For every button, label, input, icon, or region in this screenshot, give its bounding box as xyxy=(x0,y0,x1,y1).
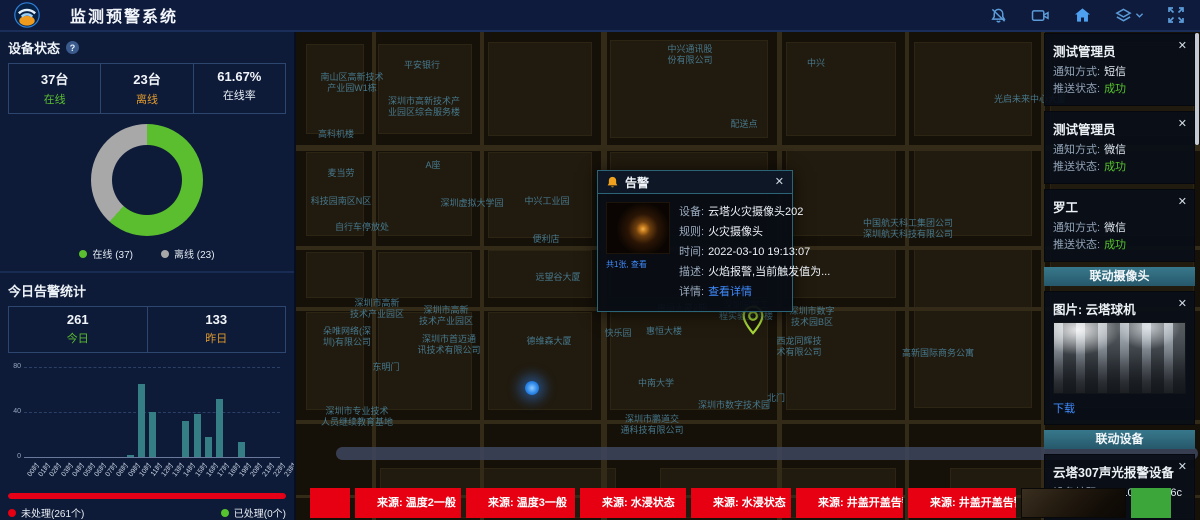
stat-cell: 37台在线 xyxy=(9,64,100,113)
map-building xyxy=(914,42,1032,136)
ticker-item-text: 来源: 温度2一般 xyxy=(355,488,461,518)
map-label: 中国航天科工集团公司深圳航天科技有限公司 xyxy=(863,218,953,240)
map-building xyxy=(488,42,592,136)
card-title: 测试管理员 xyxy=(1053,119,1186,138)
bar xyxy=(194,414,201,457)
processed-legend-item: 已处理(0个) xyxy=(221,505,286,520)
popup-field-label: 时间: xyxy=(679,242,704,262)
card-row: 推送状态:成功 xyxy=(1053,81,1186,98)
map-building xyxy=(786,42,896,136)
map-label: 中兴 xyxy=(807,58,825,69)
map-label: 南山区高新技术产业园W1栋 xyxy=(320,72,383,94)
header: 监测预警系统 xyxy=(0,0,1200,32)
alarm-bell-icon xyxy=(606,176,619,189)
app-root: 监测预警系统 xyxy=(0,0,1200,520)
popup-field-value: 火焰报警,当前触发值为... xyxy=(708,262,830,282)
bar xyxy=(138,384,145,457)
card-row-value: 成功 xyxy=(1104,83,1126,95)
map-label: 深圳市高新技术产业园区综合服务楼 xyxy=(388,96,460,118)
ticker-item-text: 来源: 井盖开盖告警 xyxy=(796,488,903,518)
camera-snapshot-image[interactable] xyxy=(1053,322,1186,394)
stat-value: 133 xyxy=(148,312,286,327)
alert-thumbnail-wrap: 共1张, 查看 xyxy=(606,202,670,302)
alert-ticker-item[interactable]: 来源: 水浸状态 xyxy=(580,488,686,518)
alert-ticker-item[interactable] xyxy=(310,488,350,518)
map-label: 快乐园 xyxy=(604,328,631,339)
map-label: 中兴工业园 xyxy=(524,196,569,207)
device-status-donut-wrap xyxy=(8,114,286,238)
app-logo-icon xyxy=(14,2,40,28)
notifications-icon[interactable] xyxy=(990,7,1007,24)
stat-value: 261 xyxy=(9,312,147,327)
close-icon[interactable]: ✕ xyxy=(1178,39,1187,52)
map-label: 西龙同辉技术有限公司 xyxy=(776,336,821,358)
stat-cell: 23台离线 xyxy=(100,64,192,113)
ticker-item-text: 来源: 水浸状态 xyxy=(691,488,791,518)
right-panel: ✕测试管理员通知方式:短信推送状态:成功✕测试管理员通知方式:微信推送状态:成功… xyxy=(1044,30,1195,520)
stat-label: 昨日 xyxy=(148,330,286,346)
left-panel: 设备状态 ? 37台在线23台离线61.67%在线率 在线 (37)离线 (23… xyxy=(0,30,296,520)
popup-field: 规则:火灾摄像头 xyxy=(679,222,830,242)
notification-cards: ✕测试管理员通知方式:短信推送状态:成功✕测试管理员通知方式:微信推送状态:成功… xyxy=(1044,33,1195,262)
unprocessed-legend-item: 未处理(261个) xyxy=(8,505,84,520)
map-label: 朵唯网络(深圳)有限公司 xyxy=(323,326,371,348)
stat-value: 61.67% xyxy=(194,69,285,84)
card-row: 通知方式:短信 xyxy=(1053,64,1186,81)
map-label: 深圳市高新技术产业园区 xyxy=(419,305,473,327)
stat-label: 今日 xyxy=(9,330,147,346)
bar xyxy=(216,399,223,458)
legend-item[interactable]: 离线 (23) xyxy=(161,246,215,261)
map-label: 深圳市数字技术园 xyxy=(698,400,770,411)
camera-card-title: 图片: 云塔球机 xyxy=(1053,299,1186,318)
map-label: 深圳市高新技术产业园区 xyxy=(350,298,404,320)
processed-legend: 未处理(261个) 已处理(0个) xyxy=(8,499,286,520)
popup-field: 描述:火焰报警,当前触发值为... xyxy=(679,262,830,282)
close-icon[interactable]: ✕ xyxy=(1178,117,1187,130)
map-label: 深圳市首迈通讯技术有限公司 xyxy=(417,334,480,356)
card-row-value: 成功 xyxy=(1104,161,1126,173)
ticker-item-text: 来源: 井盖开盖告警 xyxy=(908,488,1016,518)
stat-value: 23台 xyxy=(101,69,192,88)
stat-cell: 261今日 xyxy=(9,307,147,352)
hourly-alarm-bar-chart: 00时01时02时03时04时05时06时07时08时09时10时11时12时1… xyxy=(8,355,286,493)
map-building xyxy=(378,252,472,298)
card-row-label: 通知方式: xyxy=(1053,66,1100,78)
popup-field-value: 云塔火灾摄像头202 xyxy=(708,202,803,222)
card-row-label: 通知方式: xyxy=(1053,144,1100,156)
map-building xyxy=(488,152,592,238)
map-label: 中南大学 xyxy=(638,378,674,389)
alert-ticker: 来源: 温度2一般来源: 温度3一般来源: 水浸状态来源: 水浸状态来源: 井盖… xyxy=(310,488,1171,518)
today-alarms-title: 今日告警统计 xyxy=(8,278,286,306)
alert-fields: 设备:云塔火灾摄像头202规则:火灾摄像头时间:2022-03-10 19:13… xyxy=(679,202,830,302)
card-row: 推送状态:成功 xyxy=(1053,237,1186,254)
card-row-label: 推送状态: xyxy=(1053,83,1100,95)
map-building xyxy=(488,312,592,410)
ticker-item-text: 来源: 温度3一般 xyxy=(466,488,575,518)
x-axis-line xyxy=(24,457,280,458)
legend-text: 在线 (37) xyxy=(92,246,133,261)
bar xyxy=(182,421,189,457)
map-label: 高科机楼 xyxy=(318,129,354,140)
y-axis-tick: 80 xyxy=(8,363,21,370)
stat-value: 37台 xyxy=(9,69,100,88)
ticker-thumbnail-green xyxy=(1131,488,1171,518)
layers-icon[interactable] xyxy=(1115,7,1144,24)
popup-field-label: 规则: xyxy=(679,222,704,242)
map-label: 自行车停放处 xyxy=(335,222,389,233)
camera-card: ✕ 图片: 云塔球机 下载 xyxy=(1044,291,1195,425)
unprocessed-progress-fill xyxy=(8,493,286,499)
unprocessed-dot xyxy=(8,509,16,517)
map-label: 深圳市专业技术人员继续教育基地 xyxy=(321,406,393,428)
map-label: 便利店 xyxy=(532,234,559,245)
alert-popup-title: 告警 xyxy=(625,174,769,191)
ticker-thumbnail-dark xyxy=(1021,488,1126,518)
map-label: 深圳市数字技术园B区 xyxy=(789,306,834,328)
processed-label: 已处理(0个) xyxy=(234,505,286,520)
today-alarms-section: 今日告警统计 261今日133昨日 00时01时02时03时04时05时06时0… xyxy=(0,271,294,520)
fire-snapshot-thumbnail[interactable] xyxy=(606,202,670,254)
section-title-text: 设备状态 xyxy=(8,38,60,57)
header-actions xyxy=(990,7,1184,24)
alert-ticker-item[interactable]: 来源: 水浸状态 xyxy=(691,488,791,518)
popup-field: 详情:查看详情 xyxy=(679,282,830,302)
alert-ticker-item[interactable]: 来源: 温度3一般 xyxy=(466,488,575,518)
today-alarms-stats: 261今日133昨日 xyxy=(8,306,286,353)
card-row: 通知方式:微信 xyxy=(1053,220,1186,237)
alert-popup-body: 共1张, 查看 设备:云塔火灾摄像头202规则:火灾摄像头时间:2022-03-… xyxy=(598,194,792,311)
legend-item[interactable]: 在线 (37) xyxy=(79,246,133,261)
offline-dot xyxy=(161,250,169,258)
popup-field-value: 2022-03-10 19:13:07 xyxy=(708,242,810,262)
notification-card: ✕罗工通知方式:微信推送状态:成功 xyxy=(1044,189,1195,262)
donut-hole xyxy=(112,145,182,215)
bar xyxy=(127,455,134,457)
bar xyxy=(205,437,212,457)
map-label: 中兴通讯股份有限公司 xyxy=(667,44,712,66)
unprocessed-label: 未处理(261个) xyxy=(21,505,84,520)
view-details-link[interactable]: 查看详情 xyxy=(708,282,752,302)
y-axis-tick: 40 xyxy=(8,408,21,415)
alert-ticker-item[interactable]: 来源: 井盖开盖告警 xyxy=(796,488,903,518)
map-label: 东明门 xyxy=(372,362,399,373)
stat-label: 离线 xyxy=(101,91,192,107)
map-label: 配送点 xyxy=(730,119,757,130)
card-row-label: 推送状态: xyxy=(1053,239,1100,251)
map-label: 平安银行 xyxy=(404,60,440,71)
map-label: 德维森大厦 xyxy=(526,336,571,347)
notification-card: ✕测试管理员通知方式:短信推送状态:成功 xyxy=(1044,33,1195,106)
help-icon[interactable]: ? xyxy=(66,41,79,54)
close-icon[interactable]: ✕ xyxy=(1178,460,1187,473)
popup-field: 设备:云塔火灾摄像头202 xyxy=(679,202,830,222)
card-title: 罗工 xyxy=(1053,197,1186,216)
fullscreen-icon[interactable] xyxy=(1168,7,1184,23)
map-label: 远望谷大厦 xyxy=(535,272,580,283)
map-label: 高新国际商务公寓 xyxy=(902,348,974,359)
card-row: 通知方式:微信 xyxy=(1053,142,1186,159)
alert-popup-header[interactable]: 告警 ✕ xyxy=(598,171,792,194)
legend-text: 离线 (23) xyxy=(174,246,215,261)
page-title: 监测预警系统 xyxy=(70,3,178,27)
device-status-donut-chart xyxy=(91,124,203,236)
linked-devices-header: 联动设备 xyxy=(1044,430,1195,449)
card-row-value: 微信 xyxy=(1104,222,1126,234)
stat-cell: 133昨日 xyxy=(147,307,286,352)
map-label: 深圳市鹏道交通科技有限公司 xyxy=(620,414,683,436)
card-title: 云塔307声光报警设备 xyxy=(1053,462,1186,481)
card-title: 测试管理员 xyxy=(1053,41,1186,60)
card-row: 推送状态:成功 xyxy=(1053,159,1186,176)
map-label: 深圳虚拟大学园 xyxy=(440,198,503,209)
map-label: 麦当劳 xyxy=(327,168,354,179)
view-images-link[interactable]: 共1张, 查看 xyxy=(606,259,670,270)
donut-legend: 在线 (37)离线 (23) xyxy=(8,238,286,271)
popup-field-label: 描述: xyxy=(679,262,704,282)
card-row-label: 通知方式: xyxy=(1053,222,1100,234)
notification-card: ✕测试管理员通知方式:微信推送状态:成功 xyxy=(1044,111,1195,184)
map-label: 北门 xyxy=(767,393,785,404)
popup-field: 时间:2022-03-10 19:13:07 xyxy=(679,242,830,262)
close-icon[interactable]: ✕ xyxy=(1178,297,1187,310)
bar xyxy=(149,412,156,457)
map-label: A座 xyxy=(425,160,440,171)
alert-ticker-item[interactable]: 来源: 井盖开盖告警 xyxy=(908,488,1016,518)
linked-cameras-header: 联动摄像头 xyxy=(1044,267,1195,286)
popup-field-value: 火灾摄像头 xyxy=(708,222,763,242)
card-row-label: 推送状态: xyxy=(1053,161,1100,173)
device-status-title: 设备状态 ? xyxy=(8,35,286,63)
processed-dot xyxy=(221,509,229,517)
ticker-item-text: 来源: 水浸状态 xyxy=(580,488,686,518)
home-icon[interactable] xyxy=(1074,7,1091,23)
scrollbar-thumb[interactable] xyxy=(1195,33,1199,145)
popup-field-label: 设备: xyxy=(679,202,704,222)
map-building xyxy=(306,252,364,298)
map-building xyxy=(378,44,472,134)
y-axis-tick: 0 xyxy=(8,453,21,460)
close-icon[interactable]: ✕ xyxy=(775,177,784,188)
stat-cell: 61.67%在线率 xyxy=(193,64,285,113)
map-building xyxy=(914,248,1032,408)
map-label: 科技园南区N区 xyxy=(311,196,372,207)
bar xyxy=(238,442,245,457)
chevron-down-icon xyxy=(1135,12,1144,19)
device-status-stats: 37台在线23台离线61.67%在线率 xyxy=(8,63,286,114)
card-row-value: 成功 xyxy=(1104,239,1126,251)
stat-label: 在线 xyxy=(9,91,100,107)
close-icon[interactable]: ✕ xyxy=(1178,195,1187,208)
online-dot xyxy=(79,250,87,258)
device-status-section: 设备状态 ? 37台在线23台离线61.67%在线率 在线 (37)离线 (23… xyxy=(0,30,294,271)
device-location-dot[interactable] xyxy=(525,381,539,395)
gridline-80 xyxy=(24,367,280,368)
stat-label: 在线率 xyxy=(194,87,285,103)
card-row-value: 短信 xyxy=(1104,66,1126,78)
map-label: 惠恒大楼 xyxy=(646,326,682,337)
download-link[interactable]: 下载 xyxy=(1053,403,1075,415)
alert-popup: 告警 ✕ 共1张, 查看 设备:云塔火灾摄像头202规则:火灾摄像头时间:202… xyxy=(597,170,793,312)
section-title-text: 今日告警统计 xyxy=(8,281,86,300)
video-camera-icon[interactable] xyxy=(1031,8,1050,23)
card-row-value: 微信 xyxy=(1104,144,1126,156)
popup-field-label: 详情: xyxy=(679,282,704,302)
alert-ticker-item[interactable]: 来源: 温度2一般 xyxy=(355,488,461,518)
unprocessed-progress-bar xyxy=(8,493,286,499)
